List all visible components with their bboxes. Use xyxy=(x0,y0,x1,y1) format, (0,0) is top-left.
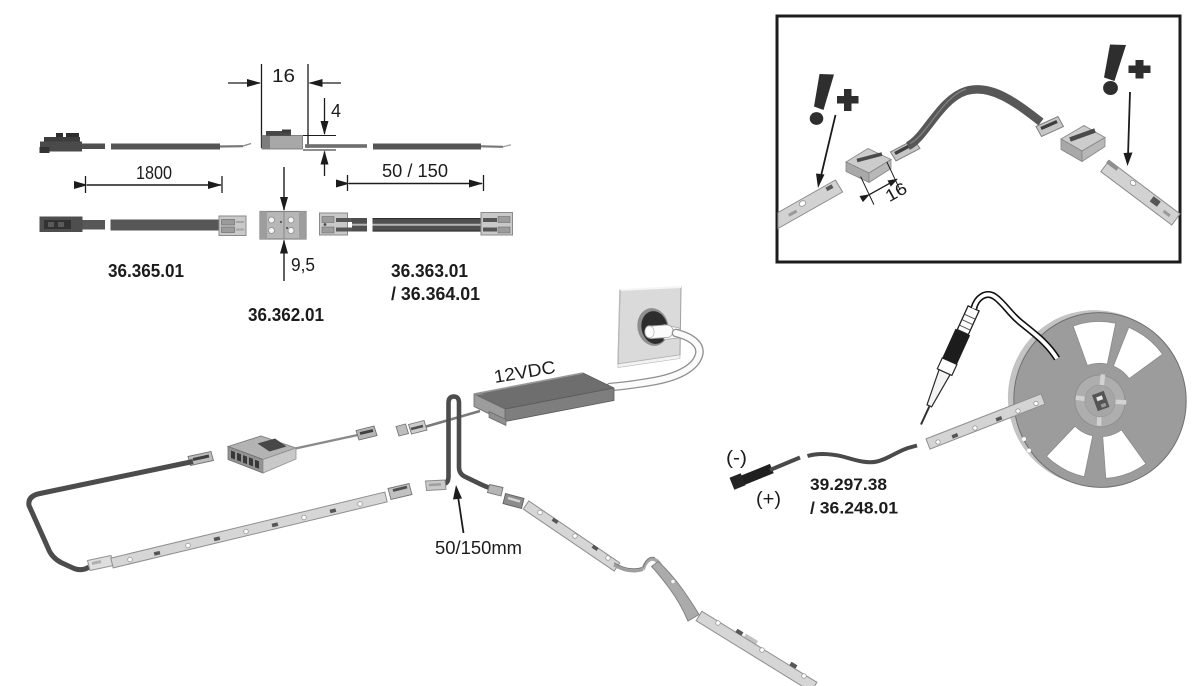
svg-text:(+): (+) xyxy=(756,488,781,510)
svg-text:39.297.38: 39.297.38 xyxy=(810,475,887,494)
svg-text:50 / 150: 50 / 150 xyxy=(382,161,448,181)
svg-text:16: 16 xyxy=(272,66,295,86)
svg-text:/ 36.364.01: / 36.364.01 xyxy=(391,284,480,304)
svg-text:50/150mm: 50/150mm xyxy=(435,538,522,558)
svg-text:36.362.01: 36.362.01 xyxy=(248,305,324,325)
svg-text:4: 4 xyxy=(331,101,341,121)
svg-text:/ 36.248.01: / 36.248.01 xyxy=(810,499,898,518)
svg-text:(-): (-) xyxy=(726,447,747,469)
svg-text:1800: 1800 xyxy=(136,163,172,183)
svg-text:9,5: 9,5 xyxy=(291,255,315,275)
svg-text:36.363.01: 36.363.01 xyxy=(391,261,468,281)
svg-text:36.365.01: 36.365.01 xyxy=(108,261,184,281)
